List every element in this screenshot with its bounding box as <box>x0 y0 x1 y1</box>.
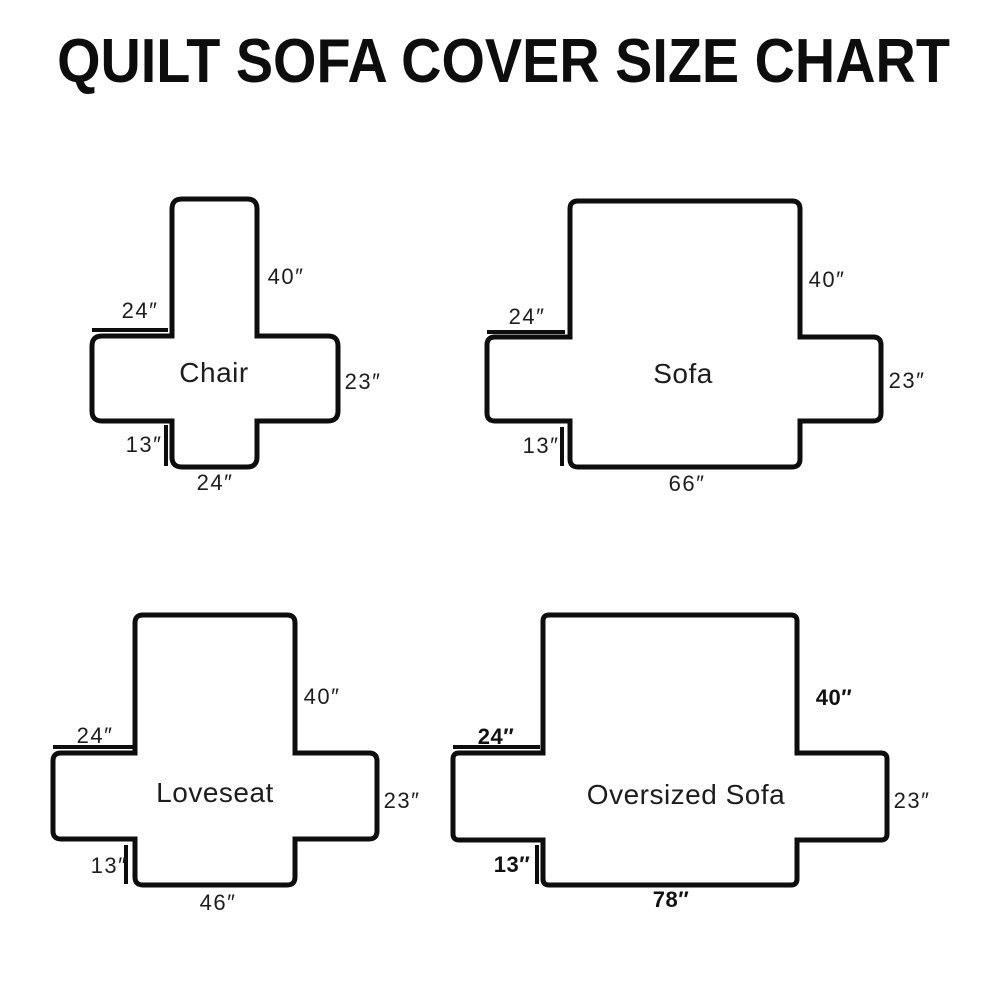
oversized-sofa-skirt-height-label: 13″ <box>494 854 531 876</box>
loveseat-skirt-height-label: 13″ <box>91 855 128 877</box>
loveseat-side-height-label: 23″ <box>384 790 421 812</box>
loveseat-name-label: Loveseat <box>156 779 274 807</box>
size-chart-page: QUILT SOFA COVER SIZE CHART 40″ 24″ Chai… <box>0 0 1007 1000</box>
oversized-sofa-bottom-width-label: 78″ <box>653 889 690 911</box>
oversized-sofa-arm-width-label: 24″ <box>478 726 515 748</box>
chair-back-height-label: 40″ <box>268 266 305 288</box>
loveseat-bottom-width-label: 46″ <box>200 892 237 914</box>
chair-skirt-height-label: 13″ <box>126 434 163 456</box>
sofa-side-height-label: 23″ <box>889 370 926 392</box>
sofa-name-label: Sofa <box>653 360 713 388</box>
chair-name-label: Chair <box>179 359 248 387</box>
sofa-bottom-width-label: 66″ <box>669 473 706 495</box>
oversized-sofa-outline <box>453 615 887 885</box>
loveseat-arm-width-label: 24″ <box>77 725 114 747</box>
diagram-shapes <box>0 0 1007 1000</box>
chair-arm-width-label: 24″ <box>122 300 159 322</box>
oversized-sofa-side-height-label: 23″ <box>894 790 931 812</box>
oversized-sofa-back-height-label: 40″ <box>816 687 853 709</box>
chair-outline <box>92 199 338 467</box>
oversized-sofa-name-label: Oversized Sofa <box>587 781 785 809</box>
sofa-arm-width-label: 24″ <box>509 306 546 328</box>
chair-side-height-label: 23″ <box>345 371 382 393</box>
sofa-back-height-label: 40″ <box>809 269 846 291</box>
loveseat-back-height-label: 40″ <box>304 686 341 708</box>
sofa-skirt-height-label: 13″ <box>523 435 560 457</box>
loveseat-outline <box>53 615 377 885</box>
chair-bottom-width-label: 24″ <box>197 472 234 494</box>
